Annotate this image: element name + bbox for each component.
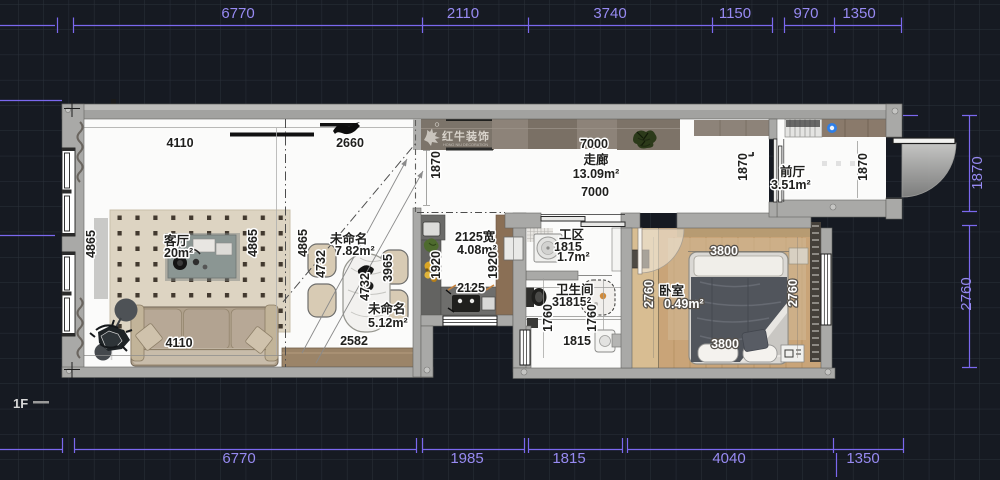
svg-text:未命名: 未命名	[367, 301, 406, 316]
svg-text:6770: 6770	[222, 450, 255, 467]
svg-text:1815: 1815	[563, 334, 591, 348]
svg-text:1870: 1870	[736, 153, 750, 181]
svg-text:走廊: 走廊	[583, 152, 609, 167]
svg-text:1760: 1760	[541, 304, 555, 332]
svg-text:1920: 1920	[486, 251, 500, 279]
svg-text:4110: 4110	[166, 136, 193, 150]
svg-text:1350: 1350	[842, 5, 875, 22]
svg-text:1F: 1F	[13, 396, 28, 411]
svg-text:2582: 2582	[340, 334, 368, 348]
svg-text:5.12m²: 5.12m²	[368, 316, 408, 330]
svg-text:1985: 1985	[450, 450, 483, 467]
svg-text:1760: 1760	[585, 304, 599, 332]
svg-text:3800: 3800	[710, 244, 738, 258]
svg-text:HONG NIU DECORATION: HONG NIU DECORATION	[443, 143, 488, 147]
svg-text:2760: 2760	[958, 277, 975, 310]
svg-text:卧室: 卧室	[659, 283, 685, 298]
svg-text:4865: 4865	[296, 229, 310, 257]
svg-text:3.51m²: 3.51m²	[771, 178, 811, 192]
svg-text:2760: 2760	[786, 279, 800, 307]
svg-text:3740: 3740	[593, 5, 626, 22]
svg-text:1350: 1350	[846, 450, 879, 467]
svg-text:13.09m²: 13.09m²	[573, 167, 620, 181]
svg-text:3800: 3800	[711, 337, 739, 351]
svg-text:2125: 2125	[457, 281, 485, 295]
svg-text:3965: 3965	[381, 254, 395, 282]
svg-text:2125宽: 2125宽	[455, 229, 496, 244]
svg-text:1870: 1870	[969, 156, 986, 189]
svg-text:4865: 4865	[84, 230, 98, 258]
svg-text:6770: 6770	[221, 5, 254, 22]
svg-text:1150: 1150	[719, 5, 751, 22]
svg-text:4865: 4865	[246, 229, 260, 257]
svg-text:7.82m²: 7.82m²	[335, 244, 375, 258]
svg-text:2660: 2660	[336, 136, 364, 150]
svg-text:1920: 1920	[429, 251, 443, 279]
svg-text:1870: 1870	[429, 151, 443, 179]
svg-text:前厅: 前厅	[780, 164, 806, 179]
svg-text:4110: 4110	[165, 336, 192, 350]
svg-text:4732: 4732	[358, 273, 372, 301]
svg-text:0.49m²: 0.49m²	[664, 297, 704, 311]
svg-text:2760: 2760	[642, 280, 656, 308]
svg-text:7000: 7000	[581, 185, 609, 199]
svg-text:1.7m²: 1.7m²	[557, 250, 590, 264]
svg-text:970: 970	[793, 5, 818, 22]
svg-text:1815: 1815	[552, 450, 585, 467]
svg-text:4040: 4040	[712, 450, 745, 467]
svg-text:4732: 4732	[314, 250, 328, 278]
svg-text:1870: 1870	[856, 153, 870, 181]
svg-text:20m²: 20m²	[164, 246, 193, 260]
svg-text:7000: 7000	[580, 137, 608, 151]
svg-text:红牛装饰: 红牛装饰	[442, 129, 490, 143]
svg-text:2110: 2110	[447, 5, 479, 22]
